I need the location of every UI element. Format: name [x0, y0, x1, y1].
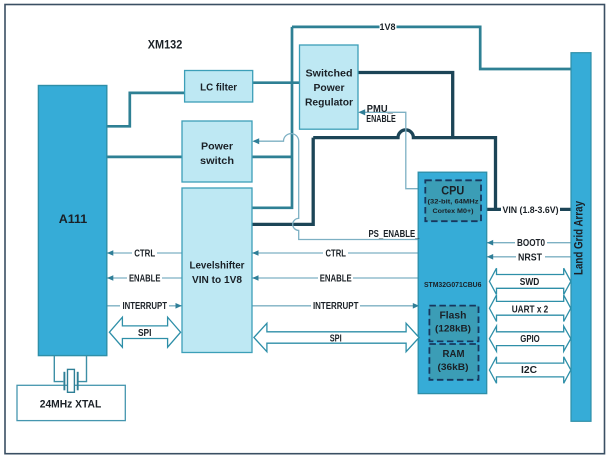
svg-text:ENABLE: ENABLE [320, 273, 352, 284]
svg-text:Switched: Switched [306, 68, 353, 80]
svg-text:A111: A111 [59, 214, 88, 226]
svg-text:INTERRUPT: INTERRUPT [313, 301, 359, 312]
svg-text:Regulator: Regulator [305, 97, 353, 109]
svg-text:GPIO: GPIO [520, 334, 540, 345]
svg-text:CPU: CPU [441, 185, 464, 197]
svg-text:SWD: SWD [520, 277, 540, 288]
svg-text:STM32G071CBU6: STM32G071CBU6 [424, 280, 482, 289]
svg-text:Cortex M0+): Cortex M0+) [433, 208, 474, 215]
svg-text:INTERRUPT: INTERRUPT [122, 301, 167, 312]
svg-text:1V8: 1V8 [380, 22, 396, 33]
svg-text:XM132: XM132 [148, 39, 183, 51]
svg-text:SPI: SPI [330, 333, 342, 344]
svg-text:SPI: SPI [138, 328, 152, 339]
svg-text:LC filter: LC filter [200, 82, 237, 94]
svg-text:switch: switch [200, 155, 234, 167]
svg-text:RAM: RAM [443, 348, 465, 360]
svg-text:UART x 2: UART x 2 [512, 305, 549, 316]
svg-text:(32-bit, 64MHz: (32-bit, 64MHz [428, 199, 480, 206]
svg-text:CTRL: CTRL [325, 248, 346, 259]
svg-text:Land Grid Array: Land Grid Array [574, 200, 586, 275]
svg-text:VIN (1.8-3.6V): VIN (1.8-3.6V) [503, 205, 559, 215]
svg-text:PS_ENABLE_: PS_ENABLE_ [369, 229, 420, 240]
svg-text:(128kB): (128kB) [435, 324, 471, 335]
svg-text:ENABLE: ENABLE [366, 114, 396, 125]
svg-text:ENABLE: ENABLE [129, 273, 161, 284]
svg-text:NRST: NRST [518, 252, 542, 263]
svg-text:Power: Power [201, 141, 233, 153]
svg-text:Power: Power [314, 82, 345, 94]
svg-text:(36kB): (36kB) [438, 362, 469, 373]
svg-text:24MHz XTAL: 24MHz XTAL [40, 398, 102, 410]
svg-text:CTRL: CTRL [134, 248, 155, 259]
svg-text:VIN to 1V8: VIN to 1V8 [192, 274, 242, 286]
svg-text:Flash: Flash [440, 310, 467, 322]
svg-text:BOOT0: BOOT0 [517, 238, 545, 249]
svg-text:Levelshifter: Levelshifter [190, 260, 245, 272]
svg-text:I2C: I2C [521, 365, 537, 376]
